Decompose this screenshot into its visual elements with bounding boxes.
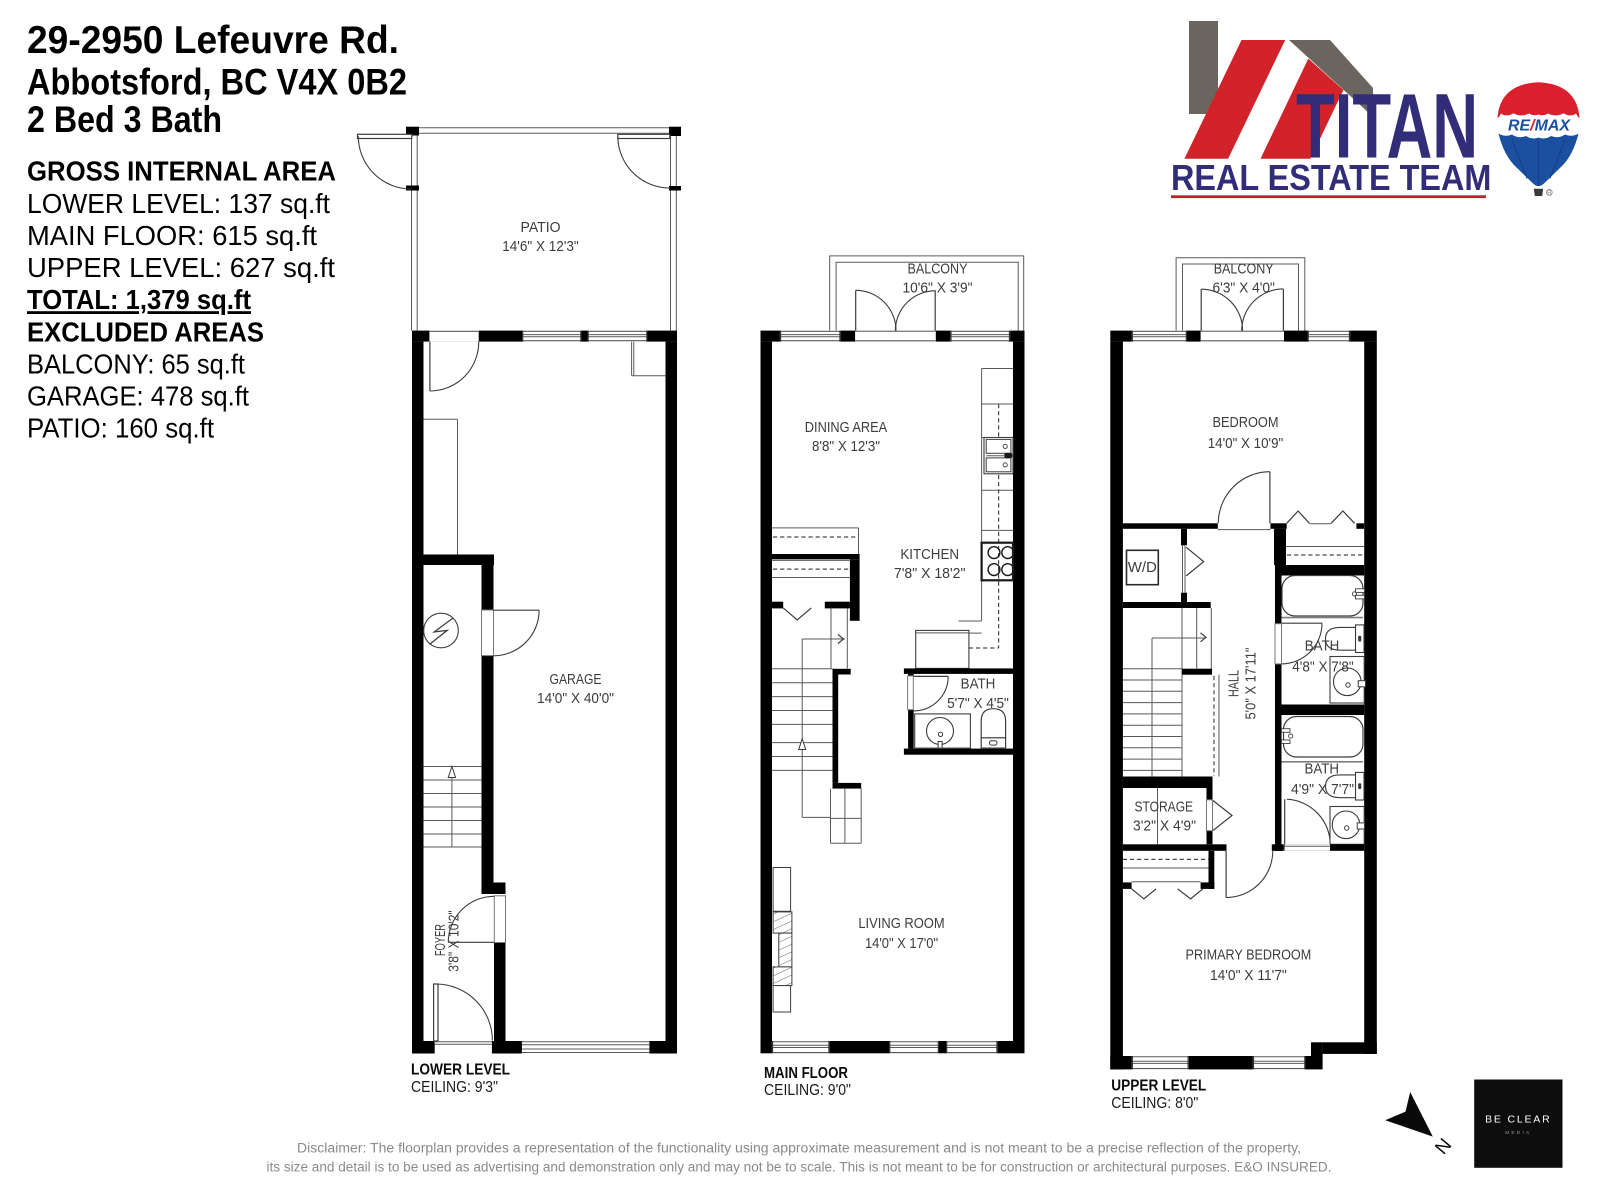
svg-text:W/D: W/D <box>1128 559 1157 576</box>
svg-text:PATIO: 160 sq.ft: PATIO: 160 sq.ft <box>27 413 214 444</box>
svg-text:BEDROOM: BEDROOM <box>1213 414 1279 431</box>
svg-text:GARAGE: 478 sq.ft: GARAGE: 478 sq.ft <box>27 381 249 412</box>
svg-text:GARAGE: GARAGE <box>550 671 602 688</box>
svg-text:MEDIA: MEDIA <box>1505 1130 1531 1136</box>
svg-text:3'8" X 10'2": 3'8" X 10'2" <box>446 910 463 971</box>
svg-text:UPPER LEVEL: UPPER LEVEL <box>1111 1078 1206 1095</box>
svg-text:Disclaimer: The floorplan prov: Disclaimer: The floorplan provides a rep… <box>297 1141 1301 1156</box>
svg-text:BE CLEAR: BE CLEAR <box>1485 1113 1551 1125</box>
svg-text:7'8" X 18'2": 7'8" X 18'2" <box>894 565 966 582</box>
svg-text:BATH: BATH <box>1305 638 1340 655</box>
svg-text:MAIN FLOOR: MAIN FLOOR <box>764 1065 848 1082</box>
svg-text:14'0" X 17'0": 14'0" X 17'0" <box>865 935 938 952</box>
svg-text:DINING AREA: DINING AREA <box>805 419 887 436</box>
svg-text:REAL ESTATE TEAM: REAL ESTATE TEAM <box>1171 158 1491 198</box>
svg-text:14'6" X 12'3": 14'6" X 12'3" <box>502 238 579 255</box>
svg-text:its size and detail is to be u: its size and detail is to be used as adv… <box>267 1159 1332 1174</box>
svg-text:3'2" X 4'9": 3'2" X 4'9" <box>1133 818 1196 835</box>
svg-text:KITCHEN: KITCHEN <box>900 546 959 563</box>
svg-text:BALCONY: 65 sq.ft: BALCONY: 65 sq.ft <box>27 348 245 379</box>
svg-text:GROSS INTERNAL AREA: GROSS INTERNAL AREA <box>27 156 336 187</box>
svg-text:8'8" X 12'3": 8'8" X 12'3" <box>812 438 880 455</box>
svg-text:BALCONY: BALCONY <box>1214 261 1274 278</box>
svg-text:BATH: BATH <box>1305 761 1340 778</box>
svg-text:CEILING: 9'3": CEILING: 9'3" <box>411 1079 498 1096</box>
svg-text:CEILING: 9'0": CEILING: 9'0" <box>764 1082 851 1099</box>
svg-text:EXCLUDED AREAS: EXCLUDED AREAS <box>27 316 264 347</box>
svg-text:2 Bed 3 Bath: 2 Bed 3 Bath <box>27 99 222 140</box>
svg-text:Abbotsford, BC V4X 0B2: Abbotsford, BC V4X 0B2 <box>27 62 407 103</box>
svg-text:PATIO: PATIO <box>521 219 561 236</box>
svg-text:R: R <box>1547 191 1551 197</box>
svg-text:HALL: HALL <box>1226 670 1243 697</box>
svg-text:LOWER LEVEL: 137 sq.ft: LOWER LEVEL: 137 sq.ft <box>27 188 330 219</box>
svg-text:29-2950 Lefeuvre Rd.: 29-2950 Lefeuvre Rd. <box>27 19 399 62</box>
svg-text:14'0" X 11'7": 14'0" X 11'7" <box>1210 967 1287 984</box>
svg-text:TOTAL: 1,379 sq.ft: TOTAL: 1,379 sq.ft <box>27 284 251 315</box>
svg-text:RE/MAX: RE/MAX <box>1508 118 1572 135</box>
svg-text:UPPER LEVEL: 627 sq.ft: UPPER LEVEL: 627 sq.ft <box>27 252 335 283</box>
svg-text:14'0" X 10'9": 14'0" X 10'9" <box>1208 435 1284 452</box>
svg-text:CEILING: 8'0": CEILING: 8'0" <box>1111 1095 1198 1112</box>
svg-text:4'8" X 7'8": 4'8" X 7'8" <box>1292 659 1354 676</box>
svg-text:5'7" X 4'5": 5'7" X 4'5" <box>947 695 1009 712</box>
svg-text:10'6" X 3'9": 10'6" X 3'9" <box>903 280 973 297</box>
svg-text:LIVING ROOM: LIVING ROOM <box>858 915 944 932</box>
svg-text:STORAGE: STORAGE <box>1135 799 1194 816</box>
svg-text:4'9" X 7'7": 4'9" X 7'7" <box>1291 781 1354 798</box>
svg-text:5'0" X 17'11": 5'0" X 17'11" <box>1243 648 1260 720</box>
svg-text:BALCONY: BALCONY <box>908 261 968 278</box>
svg-text:14'0" X 40'0": 14'0" X 40'0" <box>537 690 614 707</box>
svg-text:PRIMARY BEDROOM: PRIMARY BEDROOM <box>1186 947 1312 964</box>
svg-text:LOWER LEVEL: LOWER LEVEL <box>411 1061 510 1078</box>
svg-text:MAIN FLOOR: 615 sq.ft: MAIN FLOOR: 615 sq.ft <box>27 220 317 251</box>
svg-text:BATH: BATH <box>961 676 996 693</box>
